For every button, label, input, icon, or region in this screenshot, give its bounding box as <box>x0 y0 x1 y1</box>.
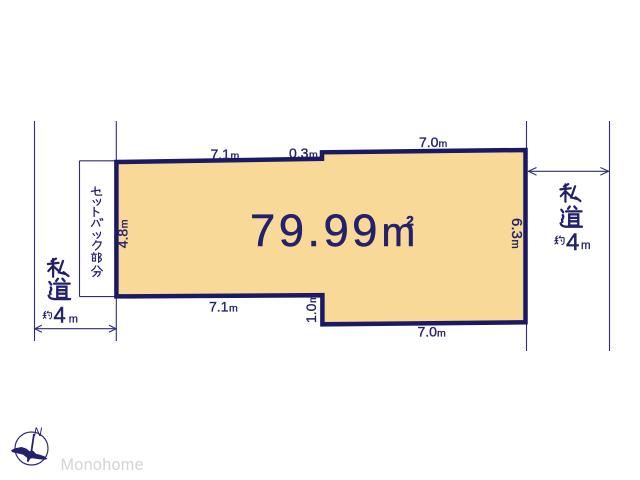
svg-text:m: m <box>309 149 318 161</box>
svg-text:0.3: 0.3 <box>289 145 309 161</box>
svg-text:m: m <box>307 294 319 303</box>
svg-text:m: m <box>229 302 238 314</box>
svg-text:7.1: 7.1 <box>211 146 231 162</box>
svg-text:7.0: 7.0 <box>418 323 438 339</box>
svg-text:7.1: 7.1 <box>209 298 229 314</box>
svg-text:4.8: 4.8 <box>115 229 131 249</box>
svg-text:m: m <box>231 150 240 162</box>
svg-text:6.3: 6.3 <box>508 218 525 239</box>
svg-text:79.99: 79.99 <box>250 205 381 256</box>
svg-text:m: m <box>581 240 591 252</box>
svg-text:N: N <box>34 427 43 439</box>
svg-text:1.0: 1.0 <box>303 303 319 323</box>
svg-text:7.0: 7.0 <box>419 134 439 150</box>
svg-text:m: m <box>437 327 446 339</box>
svg-text:m: m <box>69 313 78 325</box>
svg-text:4: 4 <box>54 303 66 328</box>
svg-text:m: m <box>119 219 131 228</box>
svg-text:m: m <box>509 240 521 249</box>
svg-text:2: 2 <box>406 213 414 228</box>
svg-text:4: 4 <box>566 229 579 256</box>
svg-text:Monohome: Monohome <box>61 456 144 474</box>
svg-text:m: m <box>439 138 448 150</box>
